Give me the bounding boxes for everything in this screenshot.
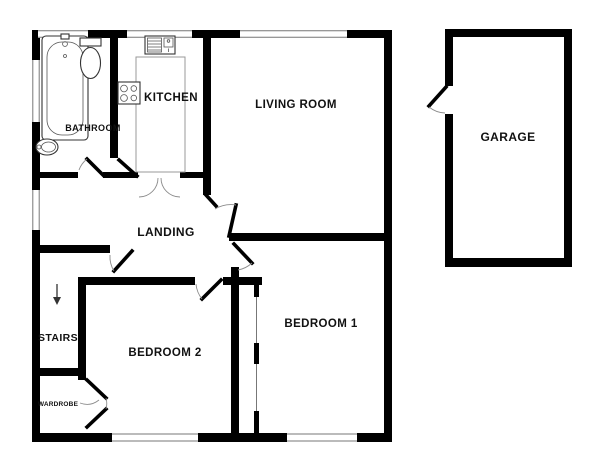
window-bedroom-1-bottom: [287, 433, 357, 442]
wall-bathroom-kitchen: [110, 38, 118, 158]
room-label-bathroom: BATHROOM: [65, 123, 121, 133]
garage-walls: [429, 29, 572, 267]
wardrobe-double-door: [80, 380, 107, 427]
room-label-wardrobe: WARDROBE: [38, 401, 79, 408]
stairs-down-arrow-icon: [53, 284, 61, 305]
wall-kitchen-living-cap: [206, 195, 216, 206]
hob: [118, 82, 140, 104]
floorplan-drawing: BATHROOM KITCHEN LIVING ROOM LANDING STA…: [0, 0, 604, 466]
stairs-door: [110, 251, 132, 271]
wall-bedroom2-left: [78, 277, 86, 380]
garage-wall-left-upper: [445, 29, 453, 86]
toilet: [80, 38, 101, 79]
window-landing-left: [32, 190, 40, 230]
window-bathroom-left: [32, 60, 40, 122]
room-label-landing: LANDING: [137, 225, 194, 239]
living-room-door: [215, 205, 236, 236]
bathroom-door: [79, 159, 103, 175]
room-label-stairs: STAIRS: [38, 332, 78, 344]
bedroom-2-door: [196, 280, 221, 299]
window-living-room-top: [240, 30, 347, 38]
wall-wardrobe-top: [32, 368, 78, 376]
room-label-bedroom-2: BEDROOM 2: [128, 347, 201, 359]
window-bedroom-2-bottom: [112, 433, 198, 442]
wall-bedroom2-top-left: [78, 277, 195, 285]
worktop: [136, 57, 185, 172]
kitchen-sink-drainer: [145, 36, 175, 54]
bathroom-fixtures: [36, 34, 101, 155]
wall-bedrooms-divider: [231, 267, 239, 433]
room-label-kitchen: KITCHEN: [144, 92, 198, 104]
room-label-bedroom-1: BEDROOM 1: [284, 318, 357, 330]
floorplan-canvas: BATHROOM KITCHEN LIVING ROOM LANDING STA…: [0, 0, 604, 466]
wash-basin: [36, 139, 58, 155]
garage-wall-bottom: [445, 258, 572, 267]
room-label-garage: GARAGE: [480, 130, 535, 144]
garage-wall-right: [564, 29, 572, 267]
garage-side-door: [429, 87, 446, 113]
room-label-living-room: LIVING ROOM: [255, 99, 337, 111]
built-in-wardrobe-front: [254, 285, 259, 433]
wall-living-bottom: [229, 233, 392, 241]
doors: [79, 159, 252, 427]
garage-wall-top: [445, 29, 572, 37]
wall-stairs-top: [32, 245, 110, 253]
garage-wall-left-lower: [445, 114, 453, 267]
wall-bathroom-bottom-left: [40, 172, 78, 178]
kitchen-fixtures: [118, 36, 185, 172]
wall-bedroom2-top-right: [223, 277, 262, 285]
bedroom-1-door: [234, 244, 252, 270]
wall-kitchen-living: [203, 38, 211, 195]
